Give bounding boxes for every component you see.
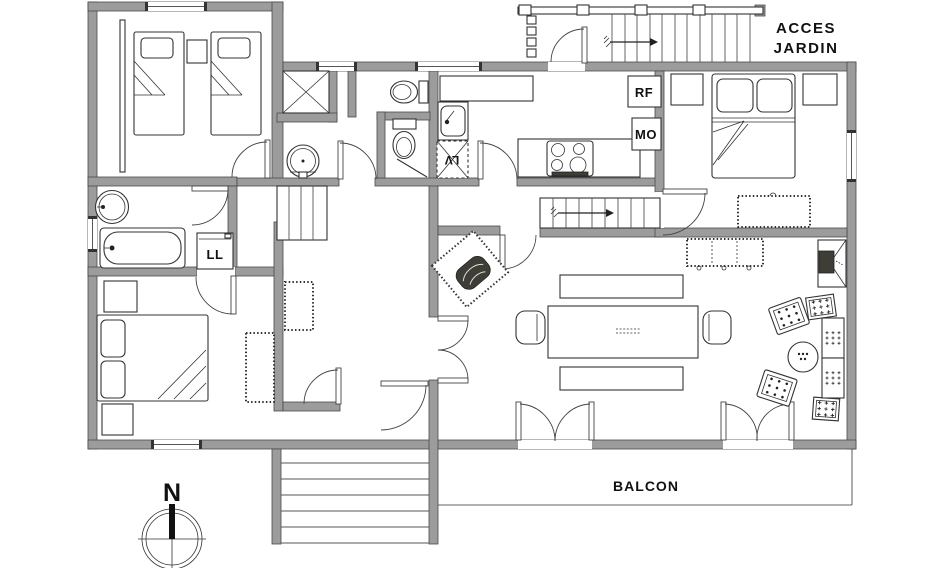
single-bed-1 bbox=[134, 32, 184, 135]
side-table-north bbox=[806, 294, 837, 320]
compass-rose: N bbox=[138, 479, 206, 568]
tv-screen bbox=[819, 251, 834, 273]
railing-post bbox=[577, 5, 589, 15]
french-door-2 bbox=[721, 402, 794, 441]
compass-north-label: N bbox=[163, 479, 181, 507]
garden-access-line2: JARDIN bbox=[774, 40, 839, 57]
washer-label: LL bbox=[207, 247, 224, 262]
wall-living-west-lower bbox=[429, 380, 438, 544]
hall-cabinet bbox=[285, 282, 313, 330]
sideboard bbox=[687, 239, 763, 270]
double-bed bbox=[97, 315, 208, 401]
corner-tv-unit bbox=[818, 240, 846, 287]
door-wc2 bbox=[397, 159, 427, 177]
wall-shower-south bbox=[277, 113, 337, 122]
stove-counter bbox=[518, 139, 640, 177]
chair-east bbox=[703, 311, 731, 344]
entry-porch bbox=[518, 5, 763, 62]
dining-set bbox=[516, 275, 731, 390]
bathtub bbox=[100, 228, 185, 268]
fridge: RF bbox=[628, 76, 661, 107]
wall-twinroom-south bbox=[88, 177, 237, 186]
opening-french-door-1 bbox=[518, 440, 592, 449]
dishwasher: LV bbox=[437, 141, 468, 178]
nightstand bbox=[104, 281, 137, 312]
door-twin-bedroom bbox=[232, 140, 270, 178]
nightstand bbox=[671, 74, 703, 105]
armchair-1 bbox=[768, 297, 810, 335]
pillow bbox=[717, 79, 753, 112]
garden-access-line1: ACCES bbox=[776, 20, 836, 37]
door-hall-living bbox=[500, 235, 536, 271]
nightstand bbox=[803, 74, 837, 105]
window-kitchen-north bbox=[415, 62, 482, 71]
wall-corridor-south-b bbox=[375, 178, 479, 186]
wall-vestibule bbox=[283, 402, 340, 411]
bench-north bbox=[560, 275, 683, 298]
kitchen-counter-top bbox=[440, 76, 533, 101]
porch-stairs bbox=[604, 14, 750, 62]
floor-plan-drawing: LL bbox=[0, 0, 946, 568]
washing-machine: LL bbox=[197, 233, 233, 269]
microwave: MO bbox=[632, 118, 661, 150]
fridge-label: RF bbox=[635, 85, 653, 100]
double-door-hall-living bbox=[438, 316, 468, 383]
cooktop bbox=[547, 141, 593, 176]
wall-twinroom-east bbox=[272, 2, 283, 182]
toilet-2 bbox=[393, 119, 416, 159]
door-kitchen bbox=[478, 141, 517, 180]
oven-handle bbox=[552, 172, 588, 176]
shower-stall bbox=[283, 71, 329, 113]
balcony-edge bbox=[438, 449, 852, 505]
pedestal-sink bbox=[287, 145, 319, 178]
kitchen: LV RF MO bbox=[437, 76, 661, 178]
stair-start-hatch bbox=[604, 36, 611, 47]
single-bed-2 bbox=[211, 32, 261, 135]
microwave-label: MO bbox=[635, 127, 657, 142]
window-corridor-north bbox=[316, 62, 357, 71]
wood-stove bbox=[432, 231, 508, 307]
round-table bbox=[788, 342, 818, 372]
wall-wc1-west bbox=[348, 71, 356, 117]
kitchen-sink bbox=[438, 102, 468, 140]
dining-table bbox=[548, 306, 698, 358]
balcony-label: BALCON bbox=[613, 478, 679, 494]
pillow bbox=[101, 361, 125, 398]
side-table-south bbox=[812, 397, 839, 421]
bedroom2-wardrobe bbox=[246, 333, 274, 402]
bathroom: LL bbox=[96, 191, 234, 270]
blanket-chest bbox=[738, 193, 810, 227]
wall-exterior-stair-west bbox=[272, 449, 281, 544]
wall-east bbox=[847, 62, 856, 449]
floor-plan: LL bbox=[0, 0, 946, 568]
hall bbox=[246, 186, 327, 402]
chair-west bbox=[516, 311, 545, 344]
window-twinroom-north bbox=[145, 2, 207, 11]
wall-wc2-west bbox=[377, 112, 385, 178]
double-bed bbox=[712, 74, 795, 178]
french-door-1 bbox=[516, 402, 594, 441]
wardrobe bbox=[120, 20, 125, 172]
wall-living-west-upper bbox=[429, 71, 438, 317]
toilet-1 bbox=[391, 81, 429, 103]
porch-side-railing bbox=[527, 16, 536, 57]
railing-post bbox=[519, 5, 531, 15]
door-vestibule-a bbox=[304, 368, 341, 404]
pillow bbox=[141, 38, 173, 58]
door-vestibule-b bbox=[381, 381, 428, 430]
door-bedroom2 bbox=[196, 276, 236, 314]
door-bathroom bbox=[192, 186, 228, 225]
window-bedroom2-south bbox=[151, 440, 202, 449]
wall-stairwell-south bbox=[540, 228, 662, 237]
wall-corridor-south-a bbox=[237, 178, 339, 186]
opening-porch-door bbox=[548, 62, 585, 71]
window-bedroom3-east bbox=[847, 130, 856, 182]
nightstand bbox=[187, 40, 207, 63]
interior-stairs bbox=[540, 198, 660, 228]
garden-access-label: ACCES JARDIN bbox=[774, 20, 839, 57]
balcony: BALCON bbox=[438, 449, 852, 505]
armchair-2 bbox=[757, 369, 798, 406]
hall-stairs bbox=[277, 186, 327, 240]
bedroom3 bbox=[671, 74, 837, 227]
washbasin bbox=[96, 191, 129, 224]
pillow bbox=[757, 79, 792, 112]
railing-post bbox=[635, 5, 647, 15]
twin-bedroom bbox=[120, 20, 261, 172]
door-corridor-hall bbox=[338, 141, 376, 179]
compass-needle bbox=[169, 504, 175, 539]
pillow bbox=[101, 320, 125, 357]
dishwasher-label: LV bbox=[445, 153, 459, 167]
pillow bbox=[218, 38, 250, 58]
wall-hall-west bbox=[274, 222, 283, 411]
door-porch-entry bbox=[551, 27, 587, 63]
railing-post bbox=[693, 5, 705, 15]
sofa bbox=[822, 318, 844, 398]
bench-south bbox=[560, 367, 683, 390]
nightstand bbox=[102, 404, 133, 435]
exterior-stairs bbox=[281, 463, 429, 543]
wall-kitchen-south bbox=[517, 178, 660, 186]
opening-french-door-2 bbox=[723, 440, 793, 449]
window-bathroom-west bbox=[88, 216, 97, 252]
bedroom2 bbox=[97, 281, 208, 435]
